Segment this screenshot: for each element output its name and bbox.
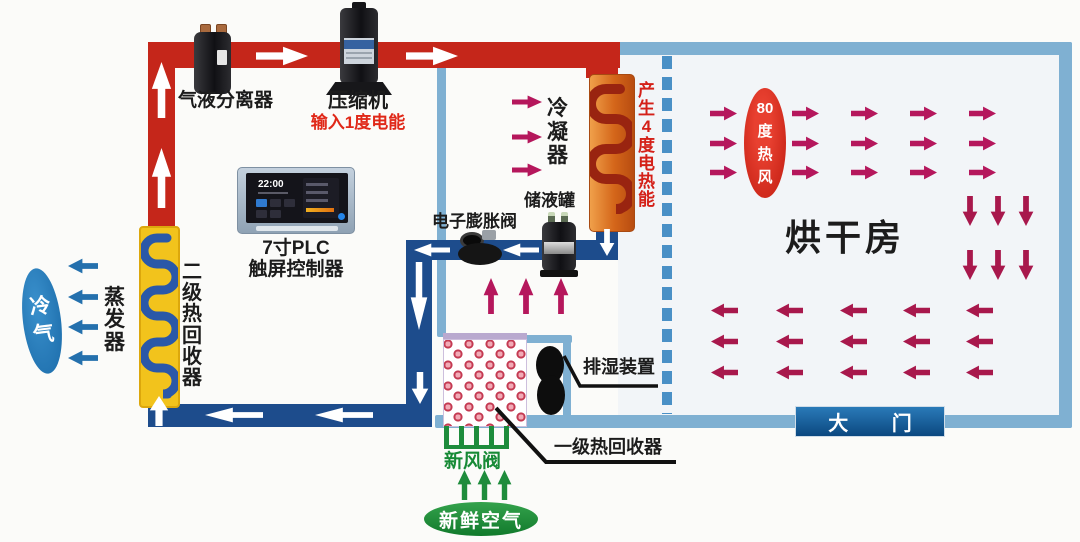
- receiver-tank: [540, 212, 578, 278]
- plc-status-panel: [303, 178, 339, 218]
- valve-body: [458, 243, 502, 265]
- grille-bar: [444, 426, 449, 445]
- plc-base: [256, 226, 338, 231]
- compressor-label-line: [346, 52, 372, 54]
- expansion-valve-label: 电子膨胀阀: [432, 212, 517, 231]
- compressor-label-line: [346, 57, 372, 59]
- stage1-callout-line: [488, 402, 680, 468]
- room-wall-top: [618, 42, 1072, 55]
- fresh-air-arrow-icon: [497, 470, 512, 500]
- plc-status-row: [306, 199, 328, 202]
- plc-screen: 22:00: [246, 173, 348, 223]
- compressor-label-band: [344, 40, 374, 49]
- grille-bar: [474, 426, 479, 445]
- plc-label: 7寸PLC 触屏控制器: [232, 238, 360, 281]
- drying-room-label: 烘干房: [785, 218, 905, 258]
- room-wall-right: [1059, 42, 1072, 428]
- power-input-label: 输入1度电能: [300, 113, 416, 132]
- fresh-air-label: 新鲜空气: [439, 506, 523, 533]
- dehumidifier-label: 排湿装置: [583, 357, 655, 377]
- fresh-air-arrow-icon: [457, 470, 472, 500]
- cold-air-arrow-icon: [68, 350, 98, 366]
- plc-controller: 22:00: [237, 167, 355, 234]
- hot-air-arrow-icon: [512, 130, 542, 144]
- fresh-air-valve-label: 新风阀: [444, 451, 501, 472]
- cold-air-label: 冷 气: [28, 292, 56, 351]
- expansion-valve-device: [456, 230, 504, 266]
- stage2-recovery-label: 二 级 热 回 收 器: [182, 262, 202, 389]
- plc-progress-bar: [306, 208, 334, 212]
- plc-clock: 22:00: [258, 179, 284, 190]
- cold-air-arrow-icon: [68, 258, 98, 274]
- gas-liquid-separator: [194, 24, 234, 94]
- machine-room-wall: [437, 64, 446, 337]
- stage1-recovery-label: 一级热回收器: [554, 437, 662, 457]
- condenser-coil-icon: [590, 75, 632, 229]
- fresh-air-bubble: 新鲜空气: [424, 502, 538, 536]
- evaporator-label: 蒸 发 器: [104, 287, 125, 354]
- gate-label: 大 门: [828, 407, 926, 436]
- separator-label: 气液分离器: [168, 90, 283, 111]
- compressor-label-plate: [344, 38, 374, 64]
- plc-subtext-line: [258, 192, 288, 194]
- hot-air-label: 80 度 热 风: [757, 97, 774, 190]
- hot-pipe-elbow: [586, 42, 618, 78]
- air-divider-dashed-line: [662, 56, 672, 414]
- plc-button[interactable]: [270, 199, 281, 207]
- stage2-heat-recovery-box: [139, 226, 180, 408]
- tank-band: [544, 242, 574, 254]
- hot-air-bubble: 80 度 热 风: [744, 88, 786, 198]
- plc-button[interactable]: [256, 210, 267, 218]
- compressor-label: 压缩机: [320, 90, 396, 112]
- grille-bar: [459, 426, 464, 445]
- heat-pump-drying-diagram: 22:00 冷 气 80 度 热 风: [0, 0, 1080, 542]
- cold-pipe-bottom: [148, 404, 432, 427]
- condenser-coil-box: [589, 74, 635, 232]
- cold-air-arrow-icon: [68, 319, 98, 335]
- plc-status-row: [306, 191, 328, 194]
- condenser-label: 冷 凝 器: [547, 97, 568, 168]
- plc-button[interactable]: [270, 210, 281, 218]
- separator-label-plate: [217, 50, 227, 65]
- plc-button[interactable]: [284, 199, 295, 207]
- plc-button[interactable]: [256, 199, 267, 207]
- cold-air-bubble: 冷 气: [17, 266, 68, 376]
- compressor-device: [326, 2, 392, 98]
- valve-fitting: [482, 230, 496, 240]
- receiver-label: 储液罐: [524, 191, 575, 210]
- hot-air-arrow-icon: [512, 163, 542, 177]
- hot-air-arrow-icon: [512, 95, 542, 109]
- air-up-arrow-icon: [518, 278, 534, 314]
- plc-status-row: [306, 183, 328, 186]
- heat-gen-label: 产 生 4 度 电 热 能: [638, 82, 655, 209]
- tank-base: [540, 270, 578, 277]
- air-up-arrow-icon: [553, 278, 569, 314]
- evaporator-coil-icon: [141, 228, 178, 406]
- air-up-arrow-icon: [483, 278, 499, 314]
- gate-sign: 大 门: [795, 406, 945, 437]
- plc-power-led: [338, 213, 345, 220]
- fresh-air-arrow-icon: [477, 470, 492, 500]
- cold-air-arrow-icon: [68, 289, 98, 305]
